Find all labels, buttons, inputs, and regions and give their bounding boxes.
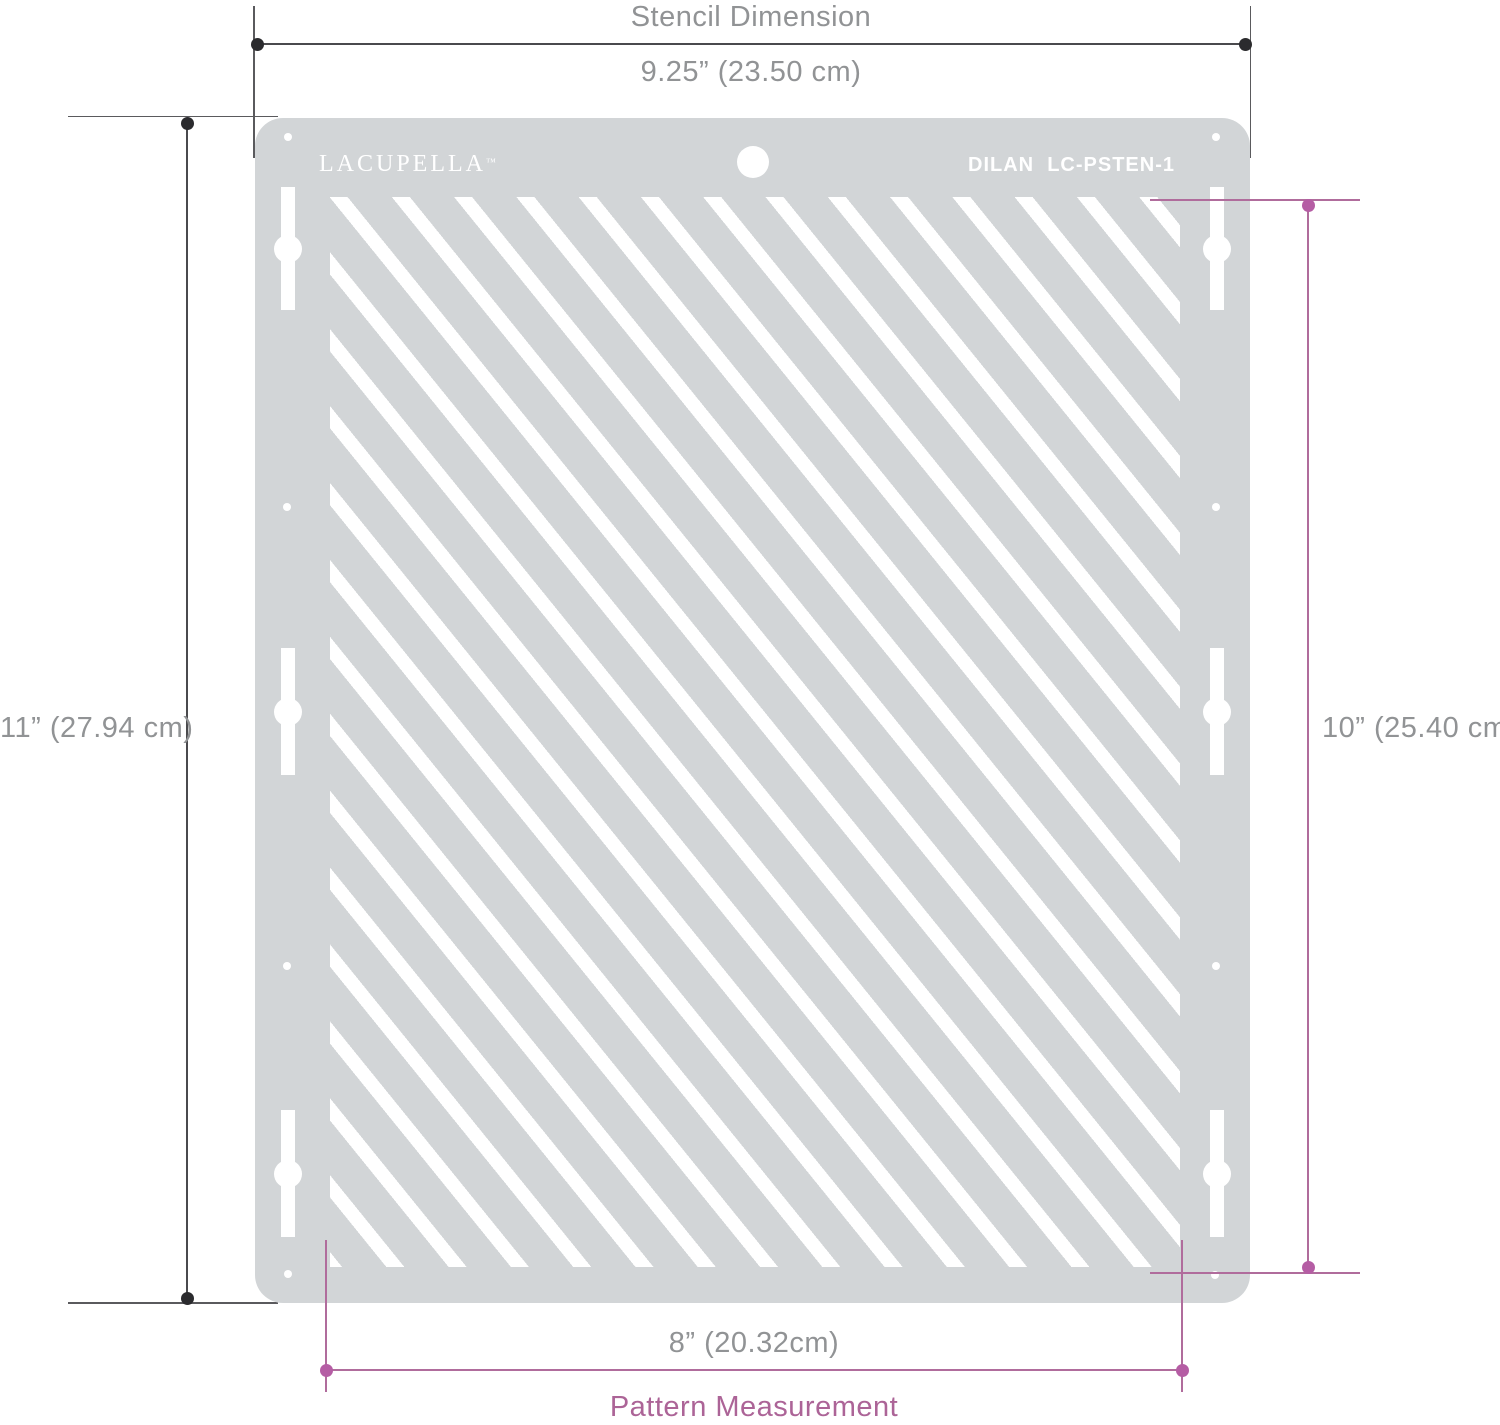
stencil-dimension-title: Stencil Dimension bbox=[631, 2, 872, 32]
diagonal-stripe-pattern bbox=[330, 197, 1180, 1267]
registration-slot bbox=[281, 187, 295, 310]
extension-line-top-right bbox=[1250, 6, 1252, 158]
pin-hole bbox=[284, 133, 292, 141]
dimension-endpoint-dot bbox=[181, 117, 194, 130]
dimension-endpoint-dot bbox=[1176, 1364, 1189, 1377]
slot-circle bbox=[274, 235, 302, 263]
pin-hole bbox=[283, 962, 291, 970]
extension-line-left-bottom bbox=[68, 1302, 278, 1304]
slot-circle bbox=[1203, 1160, 1231, 1188]
pin-hole bbox=[1212, 503, 1220, 511]
hanging-hole bbox=[737, 146, 769, 178]
stencil-plate: LACUPELLA™ DILAN LC-PSTEN-1 bbox=[255, 118, 1250, 1303]
slot-circle bbox=[274, 698, 302, 726]
dimension-line-pattern-height bbox=[1307, 205, 1309, 1267]
dimension-endpoint-dot bbox=[251, 38, 264, 51]
slot-circle bbox=[1203, 698, 1231, 726]
pattern-measurement-title: Pattern Measurement bbox=[610, 1392, 898, 1422]
pin-hole bbox=[283, 503, 291, 511]
dimension-line-pattern-width bbox=[326, 1369, 1182, 1371]
dimension-endpoint-dot bbox=[1239, 38, 1252, 51]
extension-line-top-left bbox=[253, 6, 255, 158]
slot-circle bbox=[1203, 235, 1231, 263]
dimension-line-stencil-height bbox=[186, 123, 188, 1298]
registration-slot bbox=[1210, 1110, 1224, 1237]
registration-slot bbox=[281, 1110, 295, 1237]
extension-line-right-top bbox=[1150, 199, 1360, 201]
brand-name: LACUPELLA bbox=[319, 151, 486, 177]
dimension-endpoint-dot bbox=[181, 1292, 194, 1305]
dimension-endpoint-dot bbox=[1302, 199, 1315, 212]
pattern-width-value: 8” (20.32cm) bbox=[669, 1328, 839, 1358]
dimension-endpoint-dot bbox=[320, 1364, 333, 1377]
stencil-width-value: 9.25” (23.50 cm) bbox=[641, 57, 862, 87]
pin-hole bbox=[1212, 133, 1220, 141]
model-number: DILAN LC-PSTEN-1 bbox=[968, 154, 1175, 176]
diagram-canvas: Stencil Dimension 9.25” (23.50 cm) 11” (… bbox=[0, 0, 1500, 1425]
pin-hole bbox=[284, 1270, 292, 1278]
dimension-line-stencil-width bbox=[257, 43, 1245, 45]
pin-hole bbox=[1212, 962, 1220, 970]
pattern-height-value: 10” (25.40 cm) bbox=[1322, 713, 1500, 743]
dimension-endpoint-dot bbox=[1302, 1261, 1315, 1274]
brand-logo: LACUPELLA™ bbox=[319, 150, 496, 177]
registration-slot bbox=[1210, 648, 1224, 775]
stencil-height-value: 11” (27.94 cm) bbox=[0, 713, 193, 743]
trademark-symbol: ™ bbox=[486, 157, 496, 168]
extension-line-left-top bbox=[68, 116, 278, 118]
registration-slot bbox=[1210, 187, 1224, 310]
slot-circle bbox=[274, 1160, 302, 1188]
registration-slot bbox=[281, 648, 295, 775]
